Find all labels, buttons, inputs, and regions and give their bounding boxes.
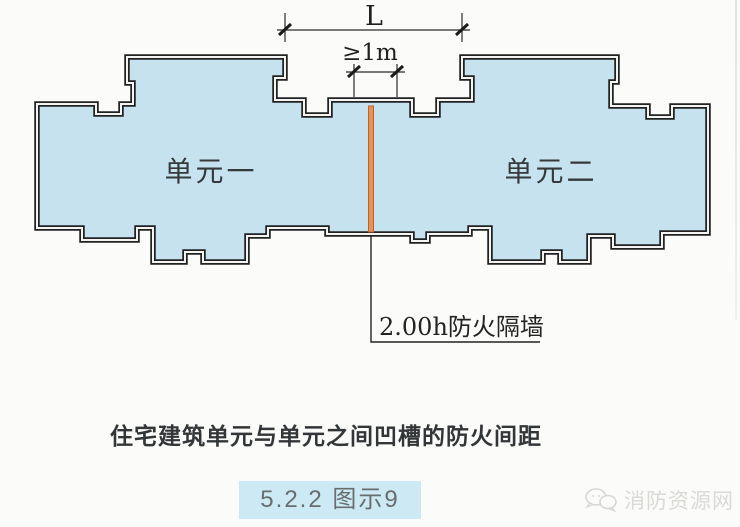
watermark: 消防资源网	[584, 485, 734, 515]
figure-badge: 5.2.2 图示9	[239, 481, 421, 519]
fire-wall-label: 2.00h防火隔墙	[379, 313, 544, 341]
watermark-text: 消防资源网	[624, 485, 734, 515]
fire-wall	[369, 106, 374, 232]
unit-one-label: 单元一	[164, 156, 257, 187]
wechat-icon	[584, 487, 618, 513]
min-distance-label: ≥1m	[342, 40, 398, 66]
unit-two-label: 单元二	[504, 156, 597, 187]
dimension-L-label: L	[365, 1, 383, 32]
figure-caption: 住宅建筑单元与单元之间凹槽的防火间距	[2, 417, 650, 451]
figure-page: L ≥1m 单元一 单元二 2.00h防火隔墙 住宅建筑单元与单元之间凹槽的防火…	[0, 0, 740, 527]
building-plan-diagram: L ≥1m 单元一 单元二 2.00h防火隔墙	[0, 0, 740, 400]
scan-artifact	[735, 0, 737, 320]
